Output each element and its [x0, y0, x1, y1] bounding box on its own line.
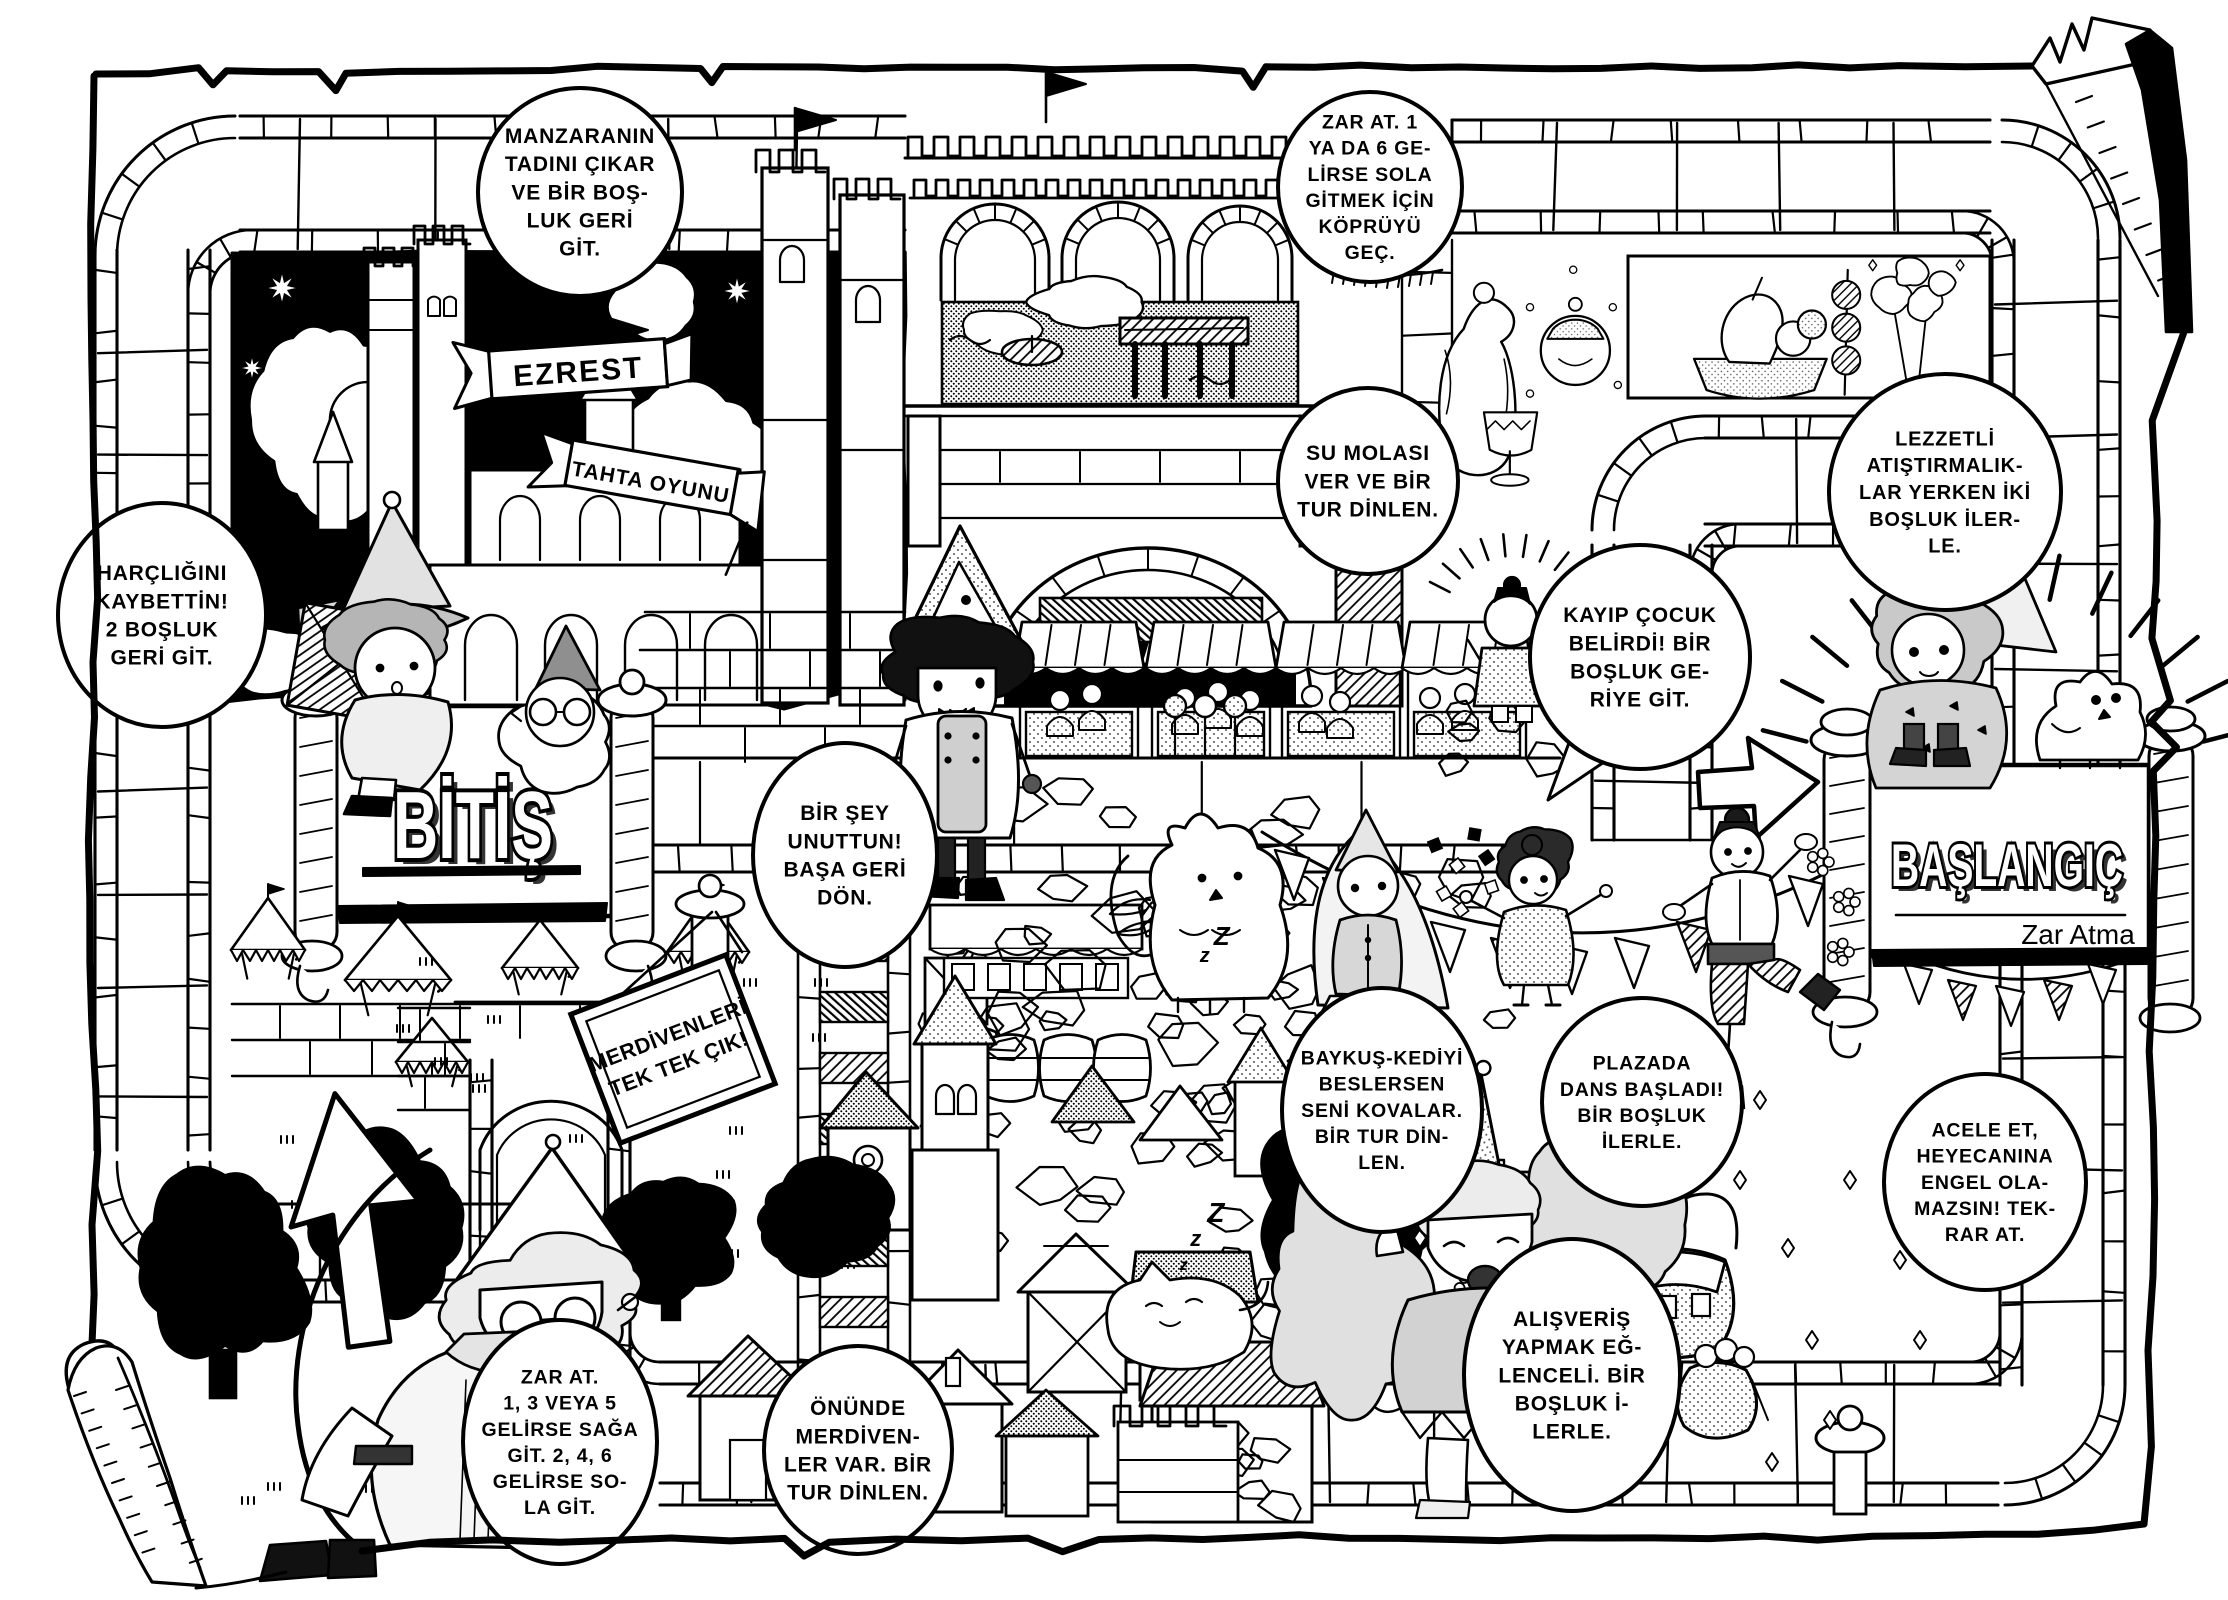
svg-text:Zar Atma: Zar Atma: [2021, 919, 2135, 950]
svg-text:BAŞLANGIÇ: BAŞLANGIÇ: [1891, 832, 2123, 899]
svg-text:SU MOLASIVER VE BİRTUR DİNLEN.: SU MOLASIVER VE BİRTUR DİNLEN.: [1297, 442, 1439, 521]
svg-text:Z: Z: [1206, 1197, 1225, 1228]
svg-text:z: z: [1189, 1226, 1202, 1251]
svg-text:z: z: [1179, 1257, 1189, 1274]
svg-text:Z: Z: [1213, 921, 1231, 951]
svg-text:z: z: [1199, 945, 1211, 967]
